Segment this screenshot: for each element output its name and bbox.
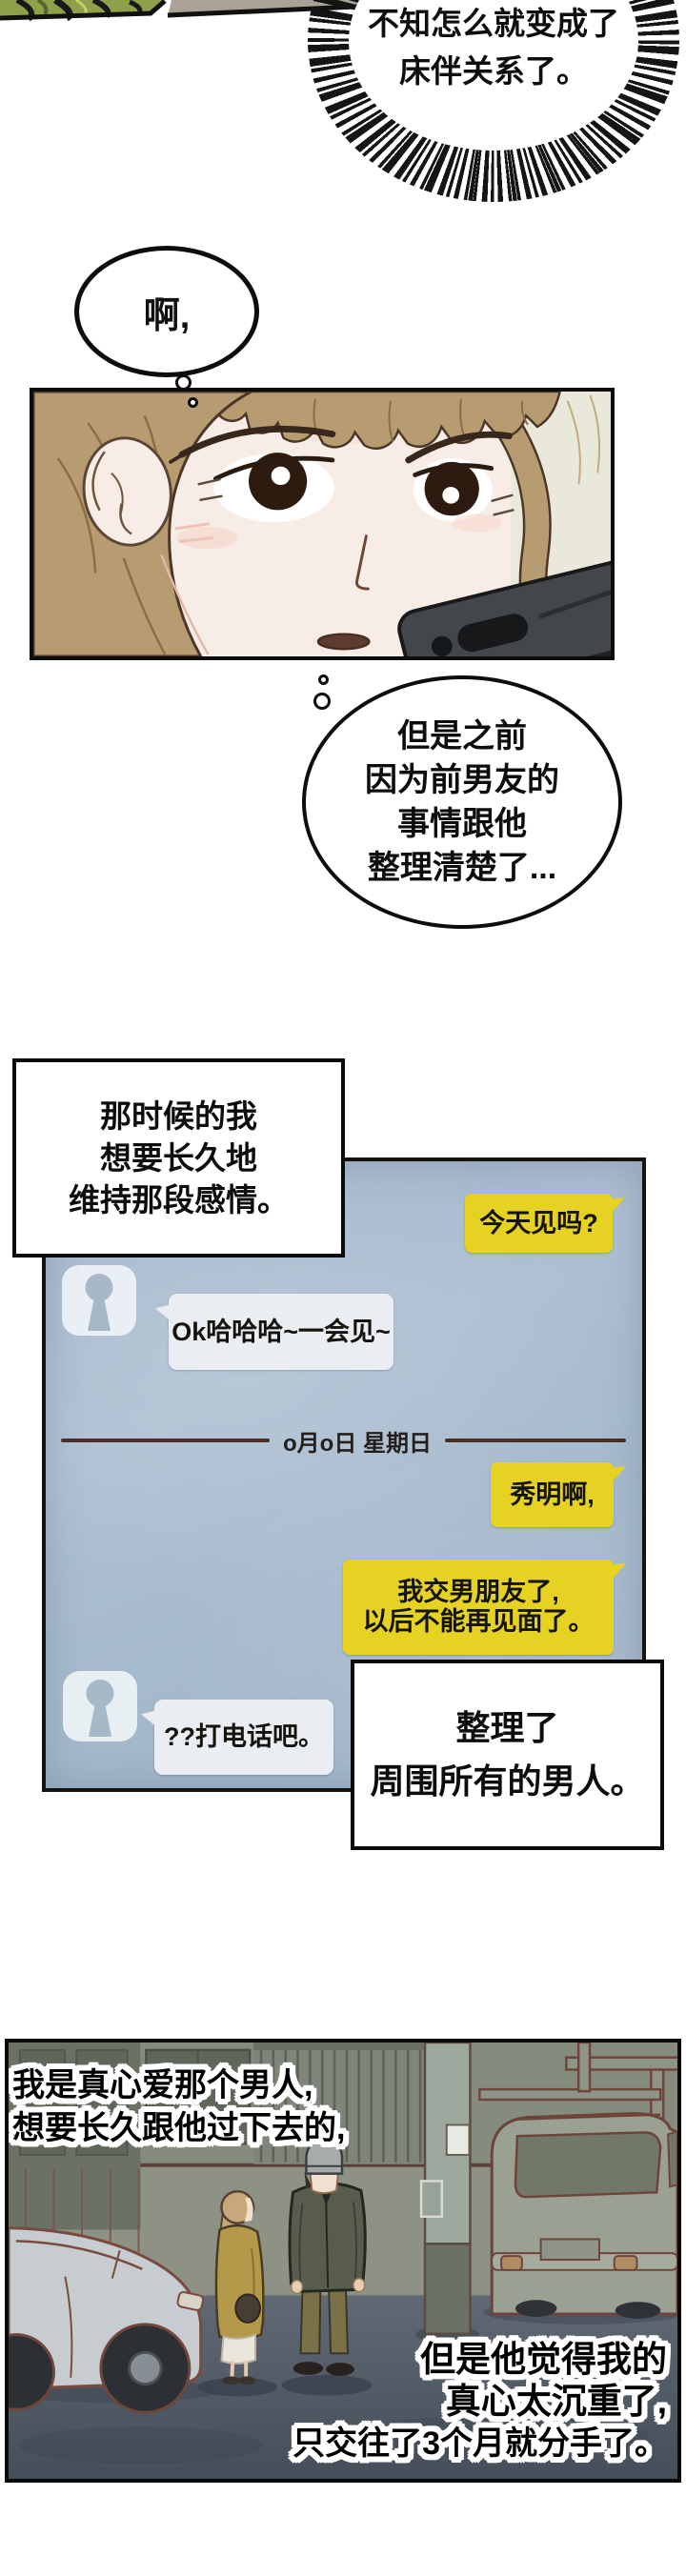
chat-text-sent-2: 秀明啊, (510, 1480, 595, 1510)
closeup-face-panel (30, 388, 615, 660)
thought-bubble: 但是之前 因为前男友的 事情跟他 整理清楚了... (302, 675, 622, 929)
webtoon-page: 不知怎么就变成了 床伴关系了。 啊, (0, 0, 686, 2576)
person-avatar-icon (86, 1274, 113, 1301)
caption-cleanup-line1: 整理了 (455, 1701, 558, 1755)
chat-text-sent-1: 今天见吗? (479, 1209, 598, 1238)
chat-text-received-1: Ok哈哈哈~一会见~ (171, 1318, 391, 1347)
street-caption-love-line2: 想要长久跟他过下去的, (12, 2107, 345, 2150)
ah-text: 啊, (144, 286, 191, 338)
woman-face-illustration (33, 392, 611, 656)
chat-bubble-sent-3: 我交男朋友了, 以后不能再见面了。 (343, 1560, 614, 1655)
thought-line3: 事情跟他 (397, 802, 527, 846)
van (483, 2113, 677, 2324)
pole-plate (421, 2181, 442, 2216)
street-caption-breakup-line2: 真心太沉重了, (293, 2381, 667, 2423)
caption-box-past: 那时候的我 想要长久地 维持那段感情。 (12, 1058, 345, 1258)
thought-line4: 整理清楚了... (368, 846, 556, 890)
caption-cleanup-line2: 周围所有的男人。 (370, 1755, 644, 1808)
caption-past-line1: 那时候的我 (100, 1096, 257, 1137)
bubble-trail-dot (175, 374, 192, 391)
chat-bubble-received-2: ??打电话吧。 (154, 1700, 333, 1775)
contact-avatar (62, 1265, 136, 1336)
chat-date-label: o月o日 星期日 (270, 1424, 445, 1458)
caption-box-cleanup: 整理了 周围所有的男人。 (351, 1660, 664, 1850)
street-caption-breakup-line3: 只交往了3个月就分手了。 (293, 2423, 667, 2465)
thought-line2: 因为前男友的 (365, 758, 559, 802)
person-avatar-icon (87, 1680, 114, 1707)
chat-text-sent-3-line1: 我交男朋友了, (397, 1578, 559, 1607)
chat-date-divider: o月o日 星期日 (61, 1428, 626, 1453)
chat-bubble-sent-1: 今天见吗? (465, 1194, 613, 1253)
thought-line1: 但是之前 (397, 714, 527, 758)
burst-text-line1: 不知怎么就变成了 (368, 0, 619, 48)
pole-sign (447, 2124, 470, 2154)
caption-past-line3: 维持那段感情。 (69, 1179, 289, 1221)
bubble-trail-dot (188, 397, 198, 408)
mouth (318, 634, 369, 650)
thought-trail-dot (313, 693, 331, 710)
street-pole (415, 2043, 479, 2343)
thought-trail-dot (318, 674, 329, 685)
burst-text-line2: 床伴关系了。 (399, 48, 588, 95)
divider-line (61, 1439, 270, 1442)
street-caption-breakup-line1: 但是他觉得我的 (293, 2339, 667, 2381)
contact-avatar (63, 1671, 137, 1741)
street-caption-breakup: 但是他觉得我的 真心太沉重了, 只交往了3个月就分手了。 (293, 2339, 667, 2465)
street-scene-panel: 我是真心爱那个男人, 想要长久跟他过下去的, 但是他觉得我的 真心太沉重了, 只… (5, 2039, 681, 2483)
caption-past-line2: 想要长久地 (100, 1137, 257, 1179)
chat-text-sent-3-line2: 以后不能再见面了。 (363, 1607, 595, 1637)
speech-bubble-ah: 啊, (74, 246, 259, 377)
chat-text-received-2: ??打电话吧。 (164, 1722, 324, 1752)
handbag (235, 2294, 260, 2322)
chat-bubble-sent-2: 秀明啊, (491, 1462, 614, 1527)
divider-line (445, 1439, 626, 1442)
chat-bubble-received-1: Ok哈哈哈~一会见~ (169, 1294, 393, 1370)
street-caption-love: 我是真心爱那个男人, 想要长久跟他过下去的, (12, 2064, 345, 2150)
street-caption-love-line1: 我是真心爱那个男人, (12, 2064, 345, 2107)
